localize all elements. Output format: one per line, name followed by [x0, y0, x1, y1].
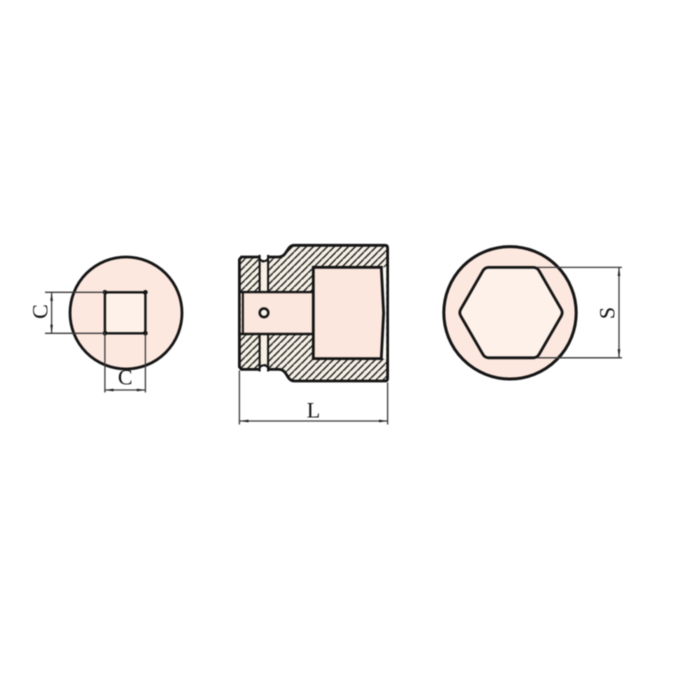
svg-text:S: S — [595, 307, 620, 319]
svg-text:C: C — [118, 365, 133, 390]
svg-text:L: L — [307, 397, 320, 422]
svg-text:C: C — [27, 304, 52, 319]
